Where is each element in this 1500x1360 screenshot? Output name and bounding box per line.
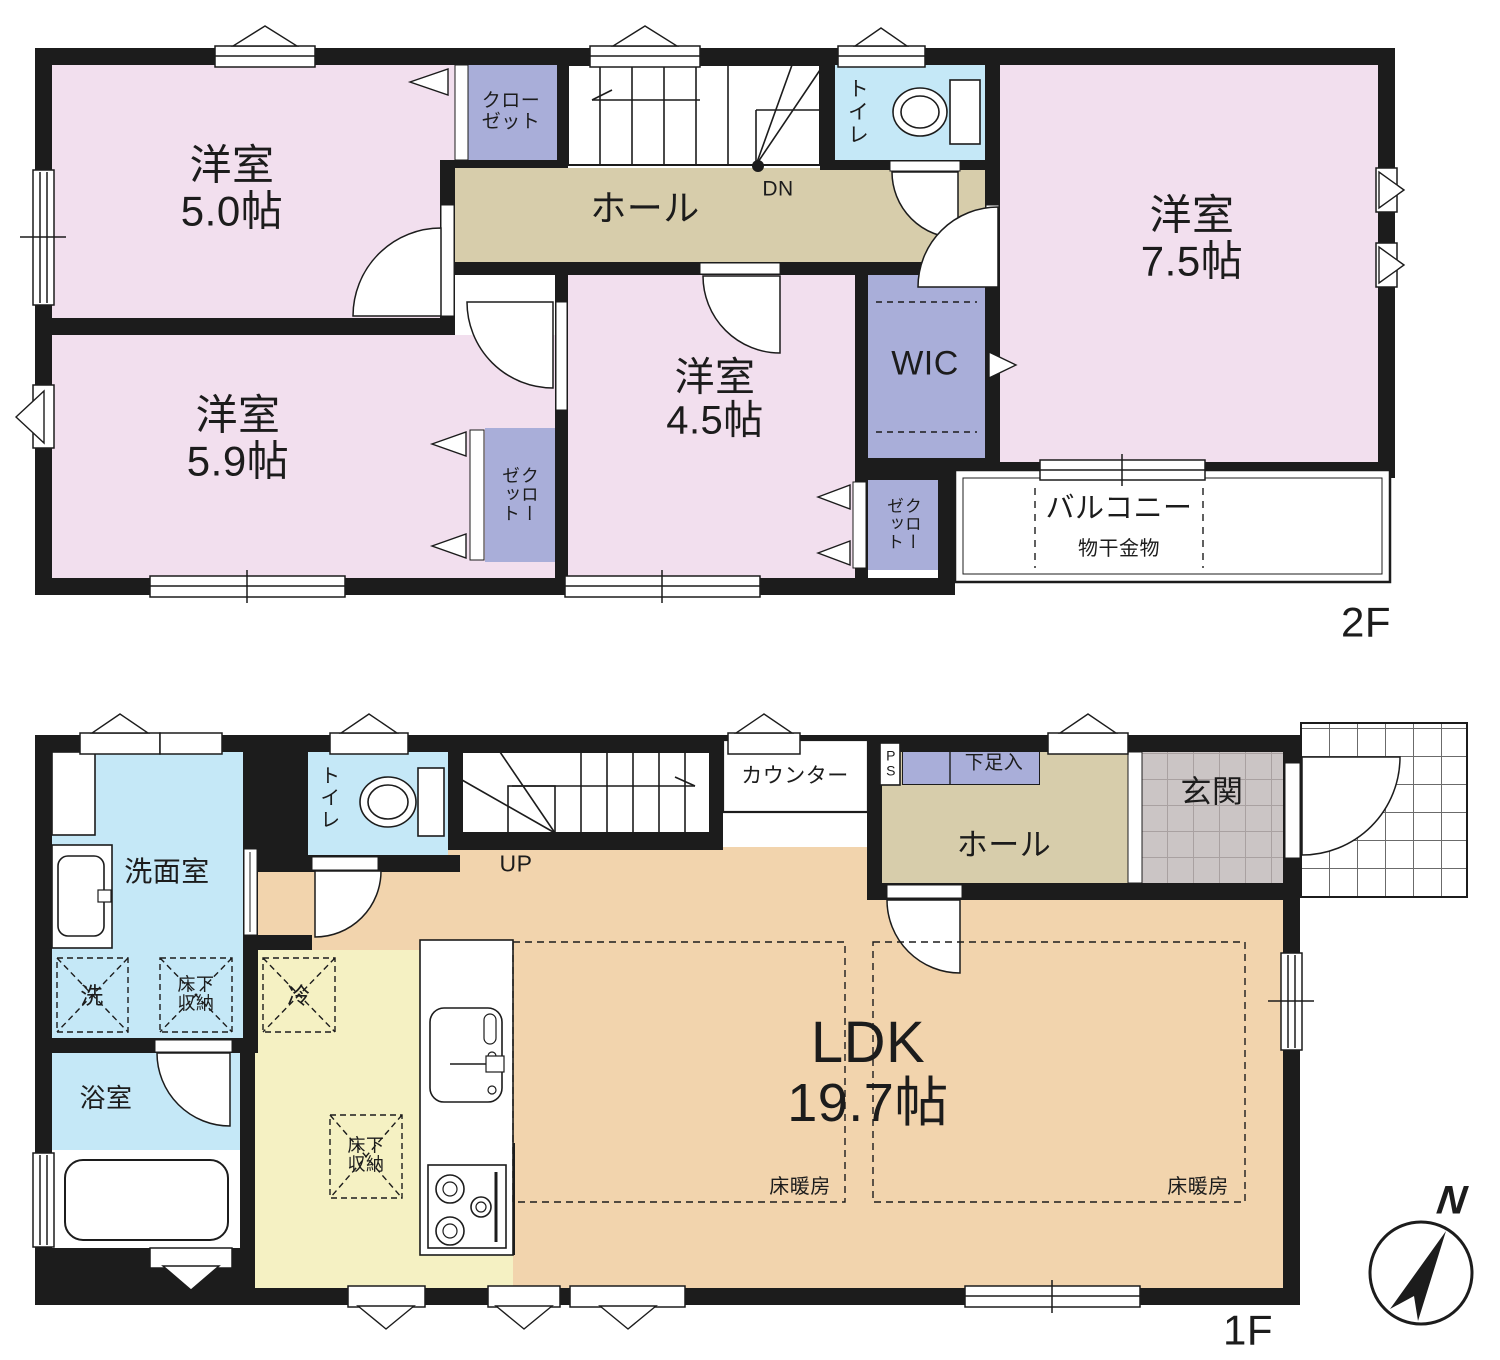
stairwell-1f	[462, 752, 710, 833]
room-5-0-name: 洋室	[189, 142, 274, 189]
ldk-size: 19.7帖	[787, 1074, 949, 1132]
label-room-7-5: 洋室 7.5帖	[1141, 147, 1243, 328]
label-senmen: 洗面室	[124, 857, 210, 887]
ldk-name: LDK	[811, 1010, 925, 1075]
room-7-5-size: 7.5帖	[1141, 238, 1243, 283]
floorplan-canvas: 洋室 5.0帖 洋室 5.9帖 洋室 4.5帖 洋室 7.5帖 ホール トイレ …	[0, 0, 1500, 1360]
label-balcony: バルコニー	[1046, 493, 1193, 524]
room-5-9-size: 5.9帖	[187, 438, 289, 483]
label-yokushitsu: 浴室	[79, 1084, 132, 1112]
closet-top-door	[455, 65, 468, 160]
label-floor-1f: 1F	[1223, 1307, 1273, 1352]
label-closet-top: クローゼット	[481, 91, 541, 132]
room-5-9-name: 洋室	[195, 392, 280, 439]
label-genkan: 玄関	[1181, 775, 1244, 808]
label-closet-right: クローゼット	[884, 493, 920, 555]
room-yoshitsu-5-9	[52, 335, 555, 578]
stairwell-2f	[568, 65, 820, 165]
label-up: UP	[500, 852, 533, 877]
bath-tub-area-1f	[52, 1150, 240, 1248]
label-room-5-9: 洋室 5.9帖	[187, 347, 289, 528]
label-toilet-1f: トイレ	[316, 765, 338, 831]
genkan-1f	[1142, 752, 1283, 883]
label-heating-left: 床暖房	[769, 1177, 831, 1199]
label-hall-2f: ホール	[590, 190, 700, 229]
label-ps: PS	[886, 749, 894, 780]
label-closet-mid: クローゼット	[500, 462, 538, 526]
label-hall-1f: ホール	[957, 828, 1052, 861]
label-floor-2f: 2F	[1341, 599, 1391, 644]
label-counter: カウンター	[741, 766, 849, 789]
entrance-porch	[1300, 722, 1468, 898]
stairs-1f-up-dot	[502, 835, 514, 847]
room-4-5-name: 洋室	[674, 356, 755, 400]
label-washer: 洗	[80, 984, 104, 1009]
room-4-5-size: 4.5帖	[666, 400, 764, 443]
label-room-5-0: 洋室 5.0帖	[181, 97, 283, 278]
balcony-deck	[955, 470, 1390, 582]
room-7-5-name: 洋室	[1149, 192, 1234, 239]
label-toilet-2f: トイレ	[845, 78, 868, 147]
label-dn: DN	[762, 179, 793, 202]
compass-icon	[1370, 1222, 1472, 1324]
label-wic: WIC	[891, 346, 959, 383]
label-shoe-box: 下足入	[965, 754, 1024, 775]
room-5-0-size: 5.0帖	[181, 188, 283, 233]
label-underfloor-b: 床下収納	[346, 1137, 386, 1176]
senmen-sliding-door	[244, 849, 257, 935]
label-compass-n: N	[1434, 1179, 1469, 1222]
label-heating-right: 床暖房	[1167, 1177, 1229, 1199]
label-fridge: 冷	[287, 984, 311, 1009]
label-monohoshi: 物干金物	[1078, 539, 1160, 561]
hall-2f	[455, 168, 1000, 262]
label-ldk: LDK 19.7帖	[787, 949, 949, 1195]
label-room-4-5: 洋室 4.5帖	[666, 314, 764, 487]
label-underfloor-a: 床下収納	[176, 976, 216, 1015]
